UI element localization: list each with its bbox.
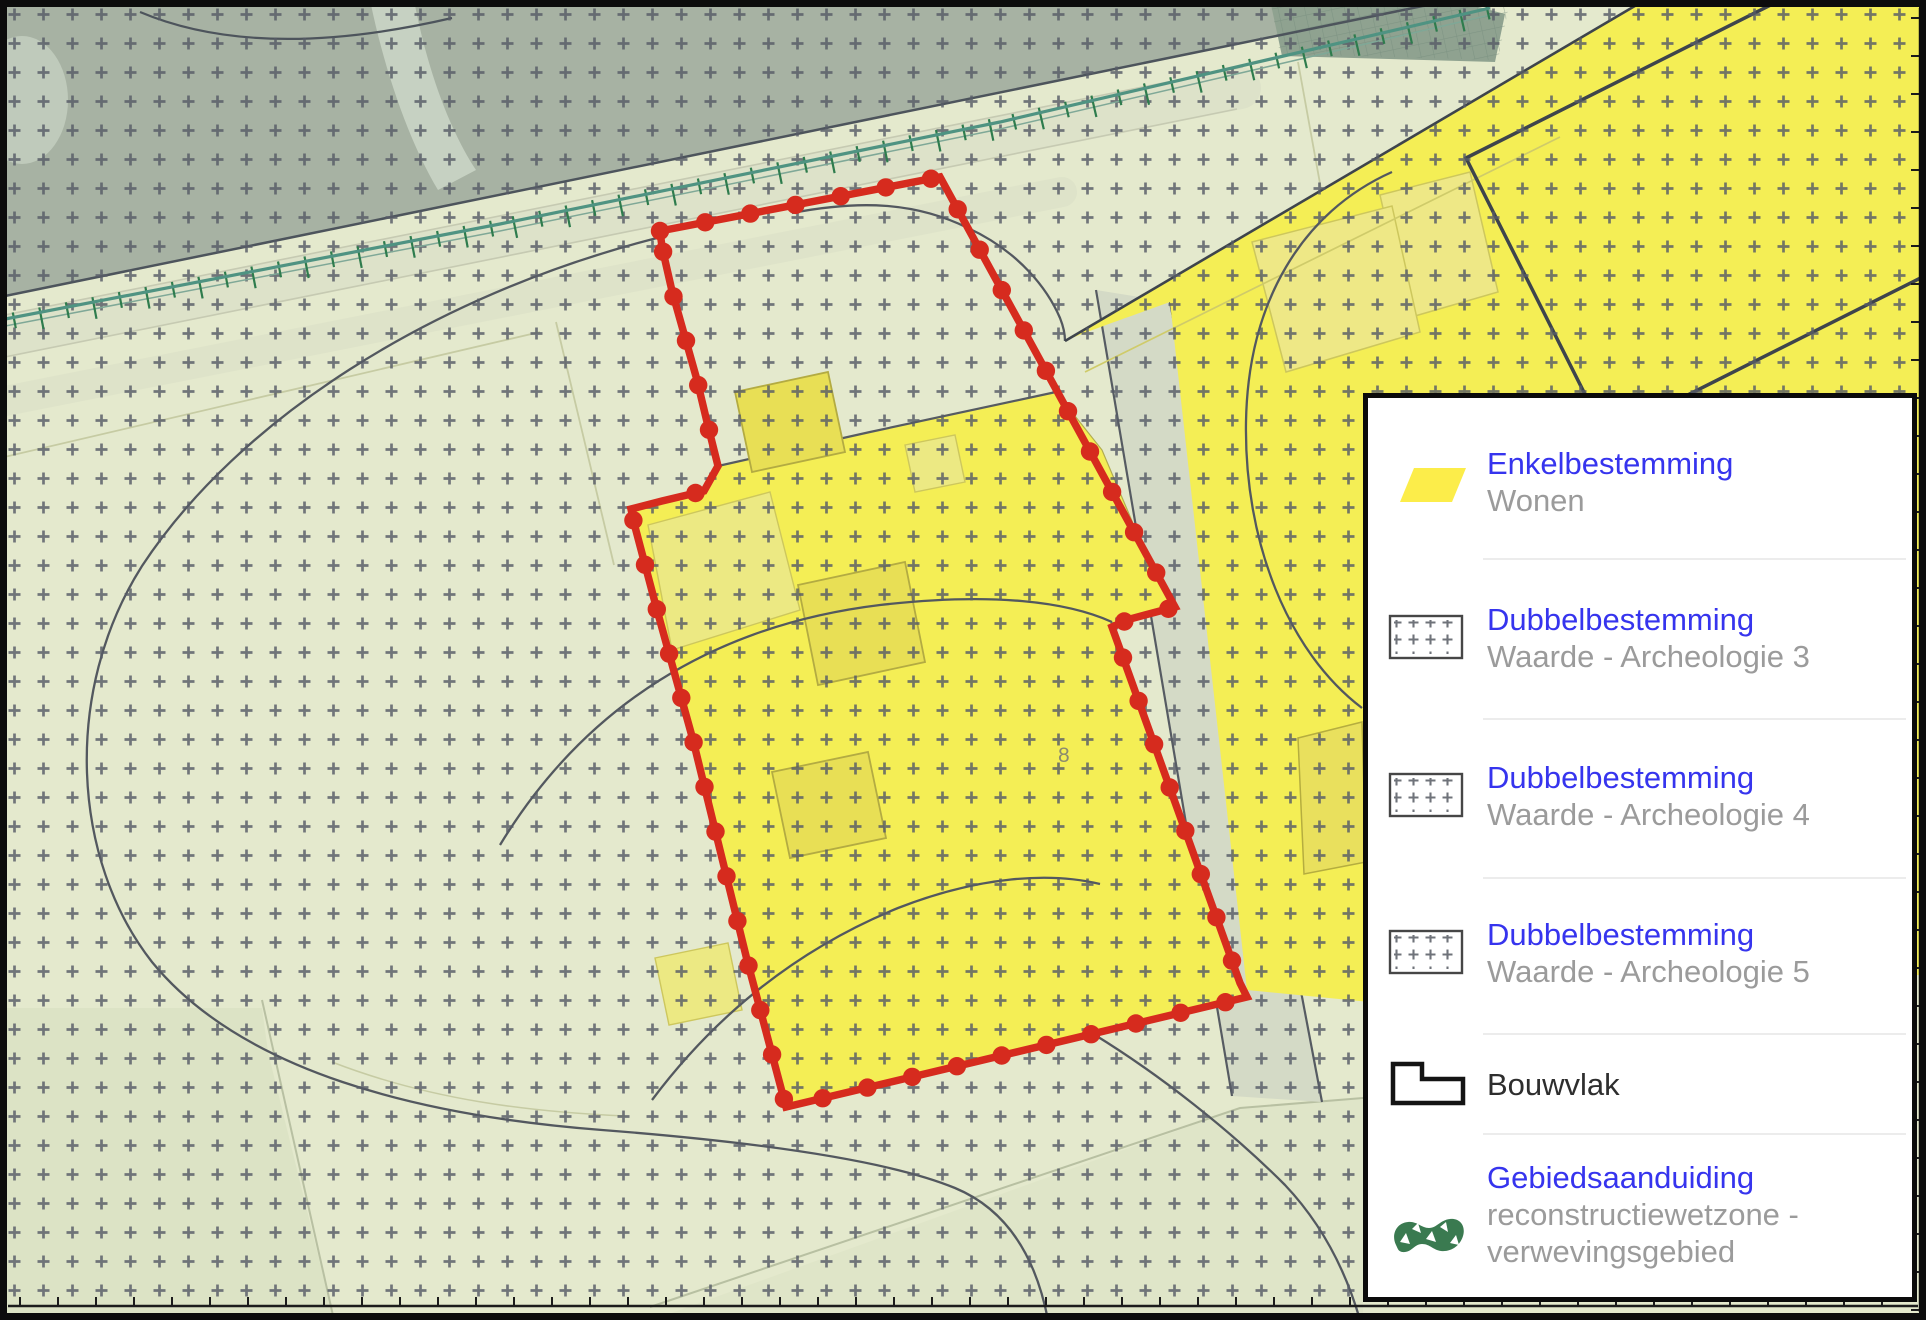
legend-subtitle-line1: reconstructiewetzone -	[1487, 1196, 1887, 1233]
legend-panel: Enkelbestemming Wonen Dubbelbestemming W…	[1363, 393, 1917, 1302]
legend-title: Dubbelbestemming	[1487, 916, 1887, 953]
legend-subtitle: Waarde - Archeologie 3	[1487, 638, 1887, 675]
legend-title: Gebiedsaanduiding	[1487, 1159, 1887, 1196]
legend-subtitle-line2: verwevingsgebied	[1487, 1233, 1887, 1270]
legend-divider	[1483, 877, 1906, 879]
gebiedsaanduiding-blob-icon	[1388, 1209, 1468, 1266]
bouwvlak-outline-icon	[1388, 1057, 1468, 1114]
archeologie-hatch-icon	[1388, 772, 1468, 825]
legend-entry-archeologie-3[interactable]: Dubbelbestemming Waarde - Archeologie 3	[1368, 601, 1912, 711]
legend-title: Enkelbestemming	[1487, 445, 1887, 482]
legend-subtitle: Waarde - Archeologie 5	[1487, 953, 1887, 990]
legend-subtitle: Wonen	[1487, 482, 1887, 519]
legend-entry-wonen[interactable]: Enkelbestemming Wonen	[1368, 445, 1912, 555]
archeologie-hatch-icon	[1388, 929, 1468, 982]
legend-divider	[1483, 1033, 1906, 1035]
wonen-parallelogram-icon	[1388, 462, 1468, 513]
legend-entry-archeologie-5[interactable]: Dubbelbestemming Waarde - Archeologie 5	[1368, 916, 1912, 1026]
legend-entry-archeologie-4[interactable]: Dubbelbestemming Waarde - Archeologie 4	[1368, 759, 1912, 869]
legend-entry-gebiedsaanduiding[interactable]: Gebiedsaanduiding reconstructiewetzone -…	[1368, 1159, 1912, 1289]
legend-entry-bouwvlak[interactable]: Bouwvlak	[1368, 1053, 1912, 1123]
legend-title: Dubbelbestemming	[1487, 759, 1887, 796]
legend-title: Dubbelbestemming	[1487, 601, 1887, 638]
legend-divider	[1483, 1133, 1906, 1135]
map-viewer-screenshot: 8 Enkelbestemming Wonen Dubbelbestemming…	[0, 0, 1926, 1320]
legend-divider	[1483, 718, 1906, 720]
legend-title: Bouwvlak	[1487, 1066, 1887, 1103]
legend-subtitle: Waarde - Archeologie 4	[1487, 796, 1887, 833]
archeologie-hatch-icon	[1388, 614, 1468, 667]
legend-divider	[1483, 558, 1906, 560]
